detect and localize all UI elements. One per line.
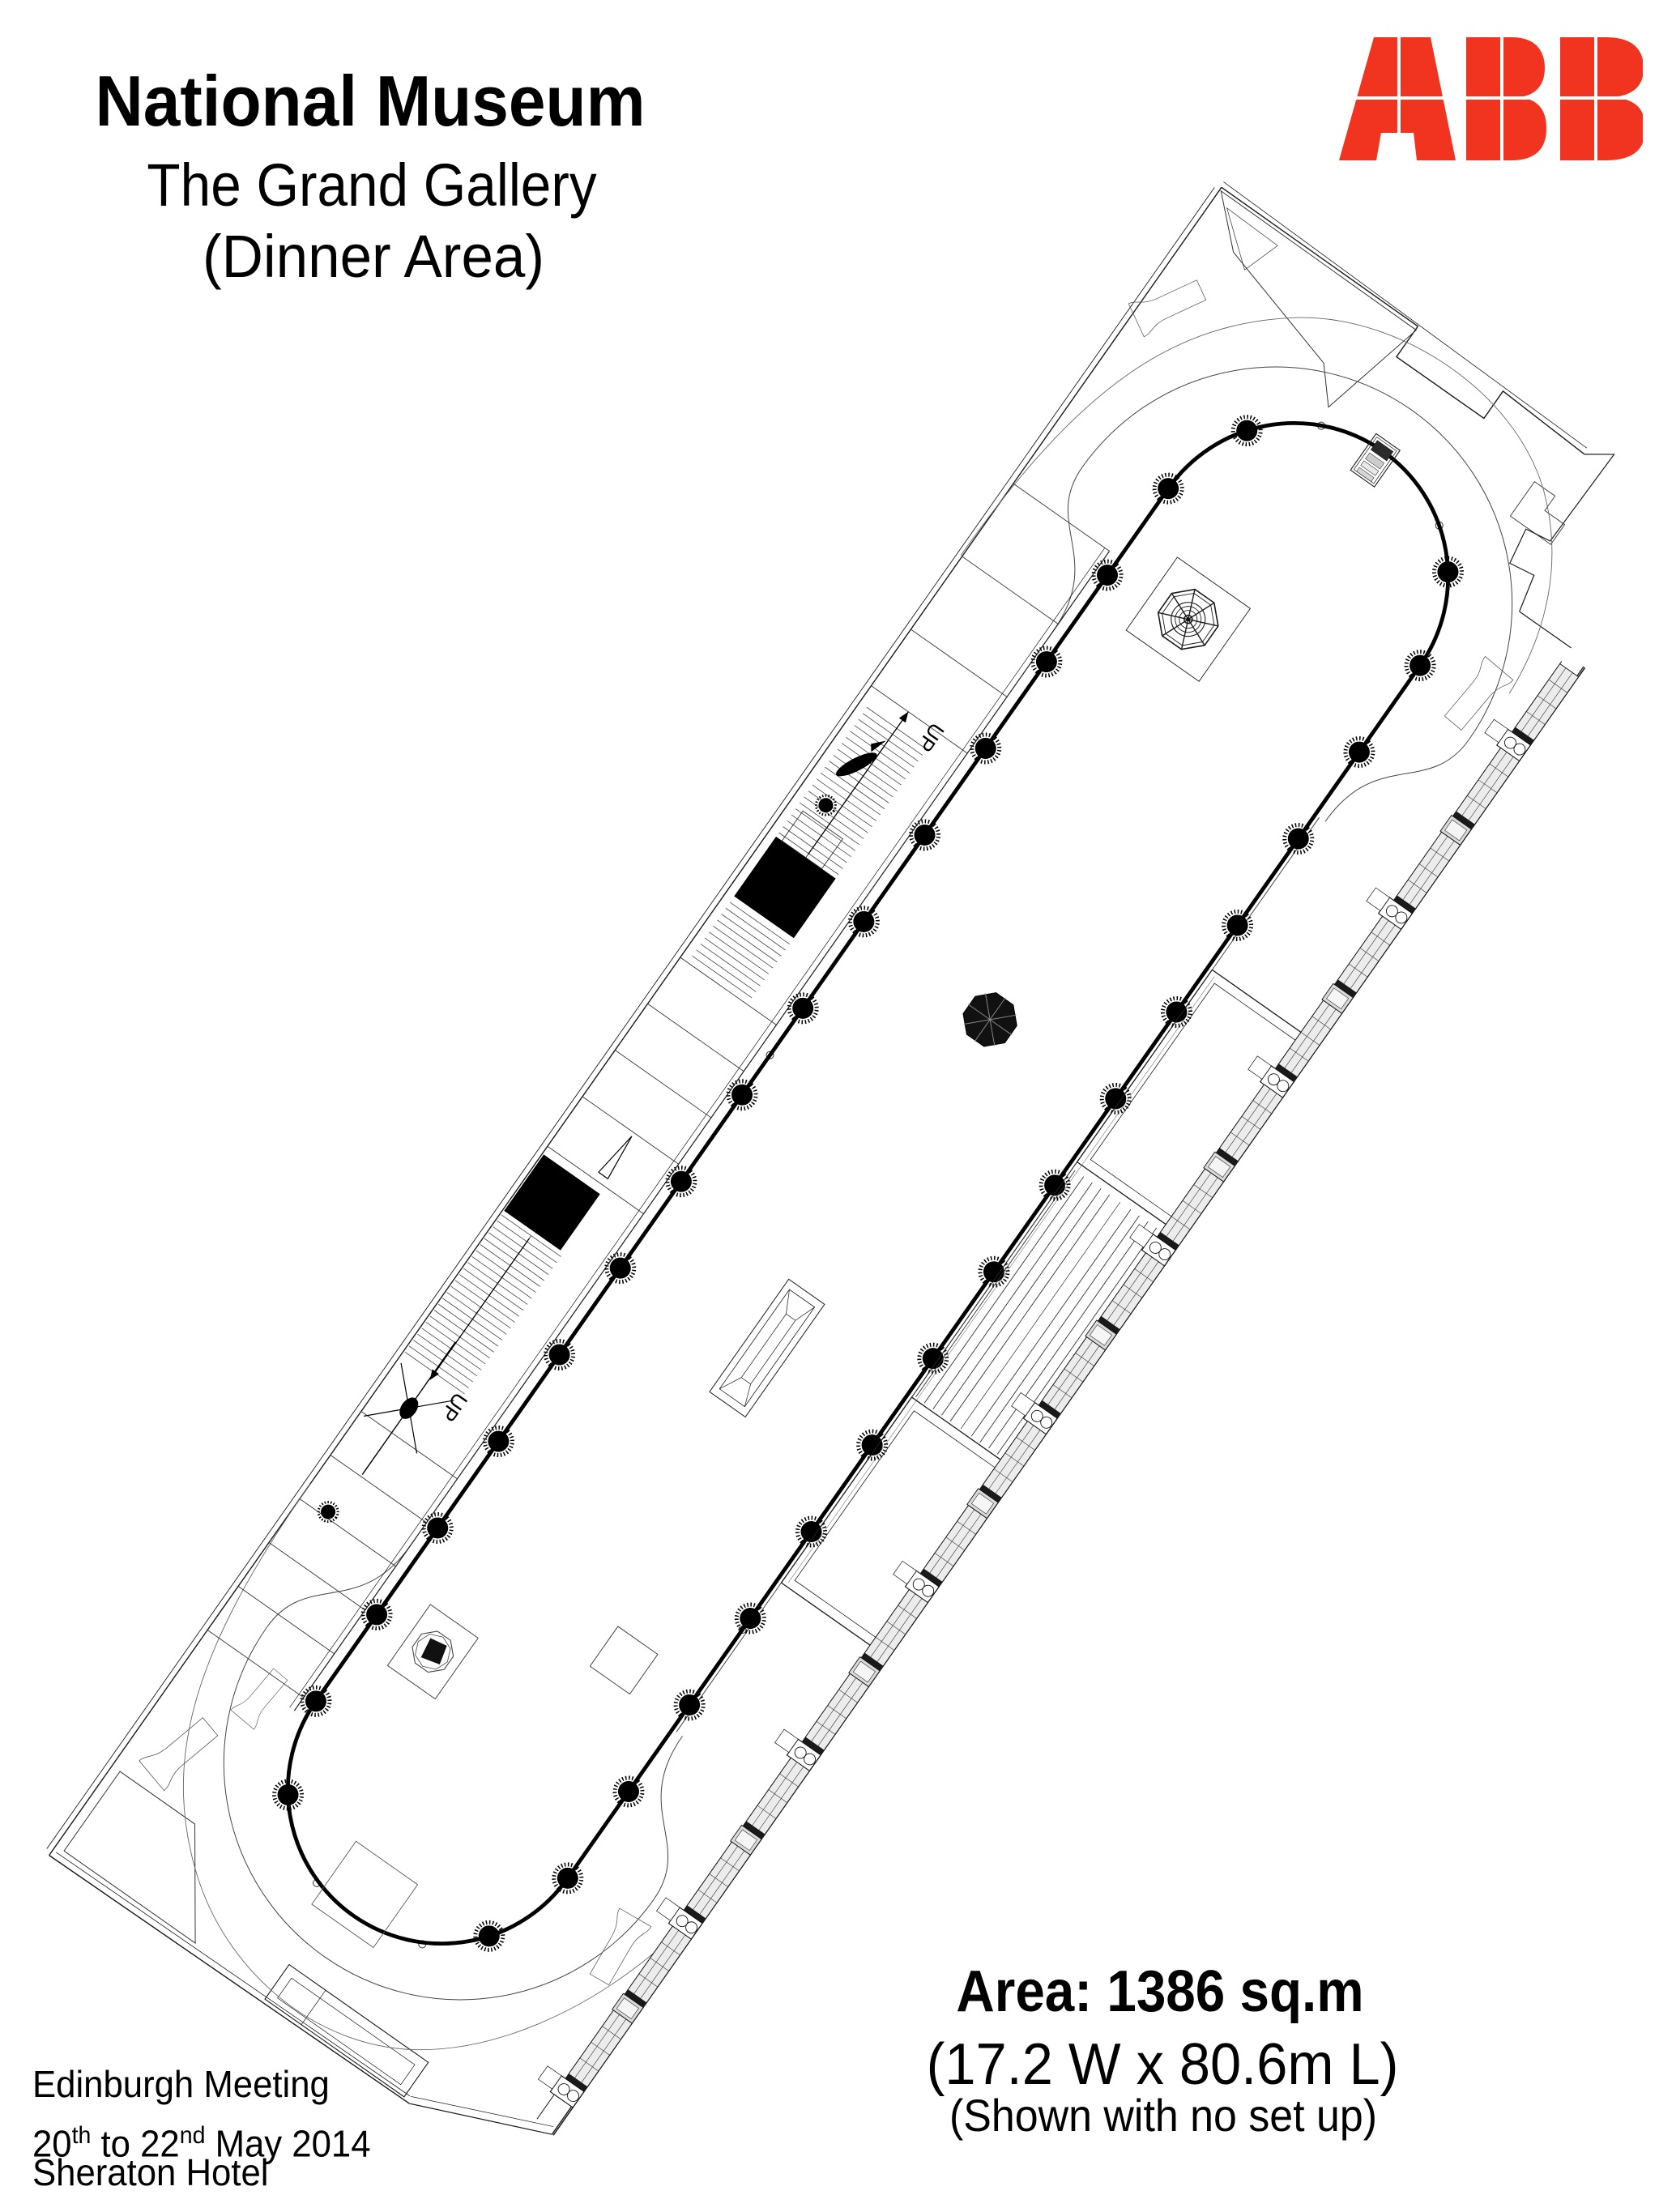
svg-text:UP: UP: [436, 1388, 472, 1426]
svg-text:UP: UP: [912, 718, 949, 757]
